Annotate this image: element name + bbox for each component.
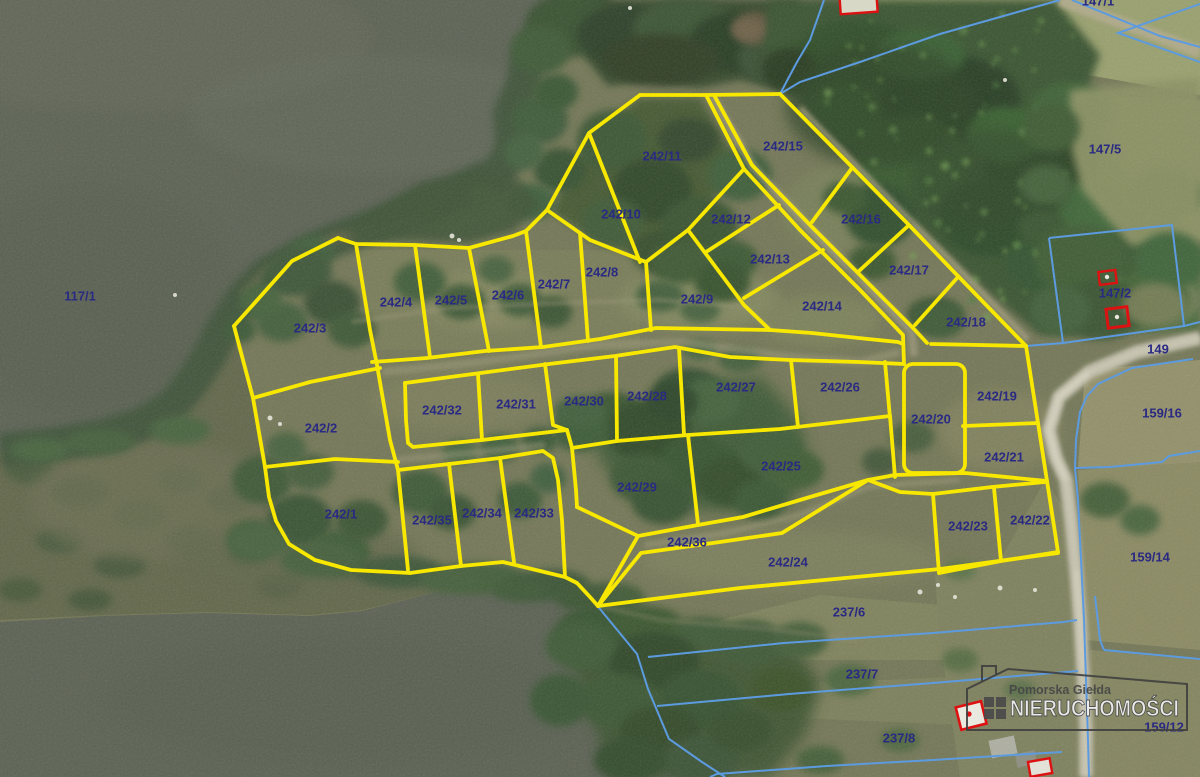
svg-text:159/16: 159/16 (1142, 406, 1182, 421)
svg-text:242/24: 242/24 (768, 555, 809, 570)
svg-text:NIERUCHOMOŚCI: NIERUCHOMOŚCI (1010, 694, 1179, 721)
svg-text:242/29: 242/29 (617, 480, 657, 495)
svg-text:242/7: 242/7 (538, 277, 571, 292)
svg-text:242/13: 242/13 (750, 252, 790, 267)
svg-text:242/28: 242/28 (627, 389, 667, 404)
svg-text:242/27: 242/27 (716, 380, 756, 395)
svg-text:242/18: 242/18 (946, 315, 986, 330)
svg-text:242/26: 242/26 (820, 380, 860, 395)
svg-text:242/6: 242/6 (492, 288, 525, 303)
svg-text:237/8: 237/8 (883, 731, 916, 746)
svg-text:242/21: 242/21 (984, 450, 1024, 465)
svg-text:242/22: 242/22 (1010, 513, 1050, 528)
svg-text:117/1: 117/1 (64, 289, 96, 304)
svg-text:242/16: 242/16 (841, 212, 881, 227)
svg-text:242/32: 242/32 (422, 403, 462, 418)
svg-text:242/10: 242/10 (601, 207, 641, 222)
svg-text:242/17: 242/17 (889, 263, 929, 278)
svg-text:242/5: 242/5 (435, 293, 468, 308)
svg-text:242/11: 242/11 (642, 149, 681, 164)
svg-text:242/19: 242/19 (977, 389, 1017, 404)
svg-text:242/34: 242/34 (462, 506, 503, 521)
svg-text:242/4: 242/4 (380, 295, 413, 310)
svg-text:242/2: 242/2 (305, 421, 338, 436)
svg-text:147/5: 147/5 (1089, 142, 1122, 157)
svg-text:242/33: 242/33 (514, 506, 554, 521)
svg-text:242/12: 242/12 (711, 212, 751, 227)
svg-text:242/9: 242/9 (681, 292, 714, 307)
svg-text:242/15: 242/15 (763, 139, 803, 154)
svg-text:237/7: 237/7 (846, 667, 879, 682)
svg-text:242/25: 242/25 (761, 459, 801, 474)
svg-text:237/6: 237/6 (833, 605, 866, 620)
svg-text:242/1: 242/1 (325, 507, 358, 522)
svg-text:159/12: 159/12 (1144, 720, 1184, 735)
svg-text:242/23: 242/23 (948, 519, 988, 534)
svg-text:242/30: 242/30 (564, 394, 604, 409)
svg-text:242/14: 242/14 (802, 299, 843, 314)
svg-text:242/20: 242/20 (911, 412, 951, 427)
svg-text:242/31: 242/31 (496, 397, 536, 412)
svg-text:149: 149 (1147, 342, 1169, 357)
svg-text:159/14: 159/14 (1130, 550, 1171, 565)
svg-text:242/36: 242/36 (667, 535, 707, 550)
svg-text:147/1: 147/1 (1082, 0, 1115, 9)
svg-text:147/2: 147/2 (1099, 286, 1132, 301)
svg-text:242/3: 242/3 (294, 321, 327, 336)
svg-text:242/35: 242/35 (412, 513, 452, 528)
svg-text:242/8: 242/8 (586, 265, 619, 280)
